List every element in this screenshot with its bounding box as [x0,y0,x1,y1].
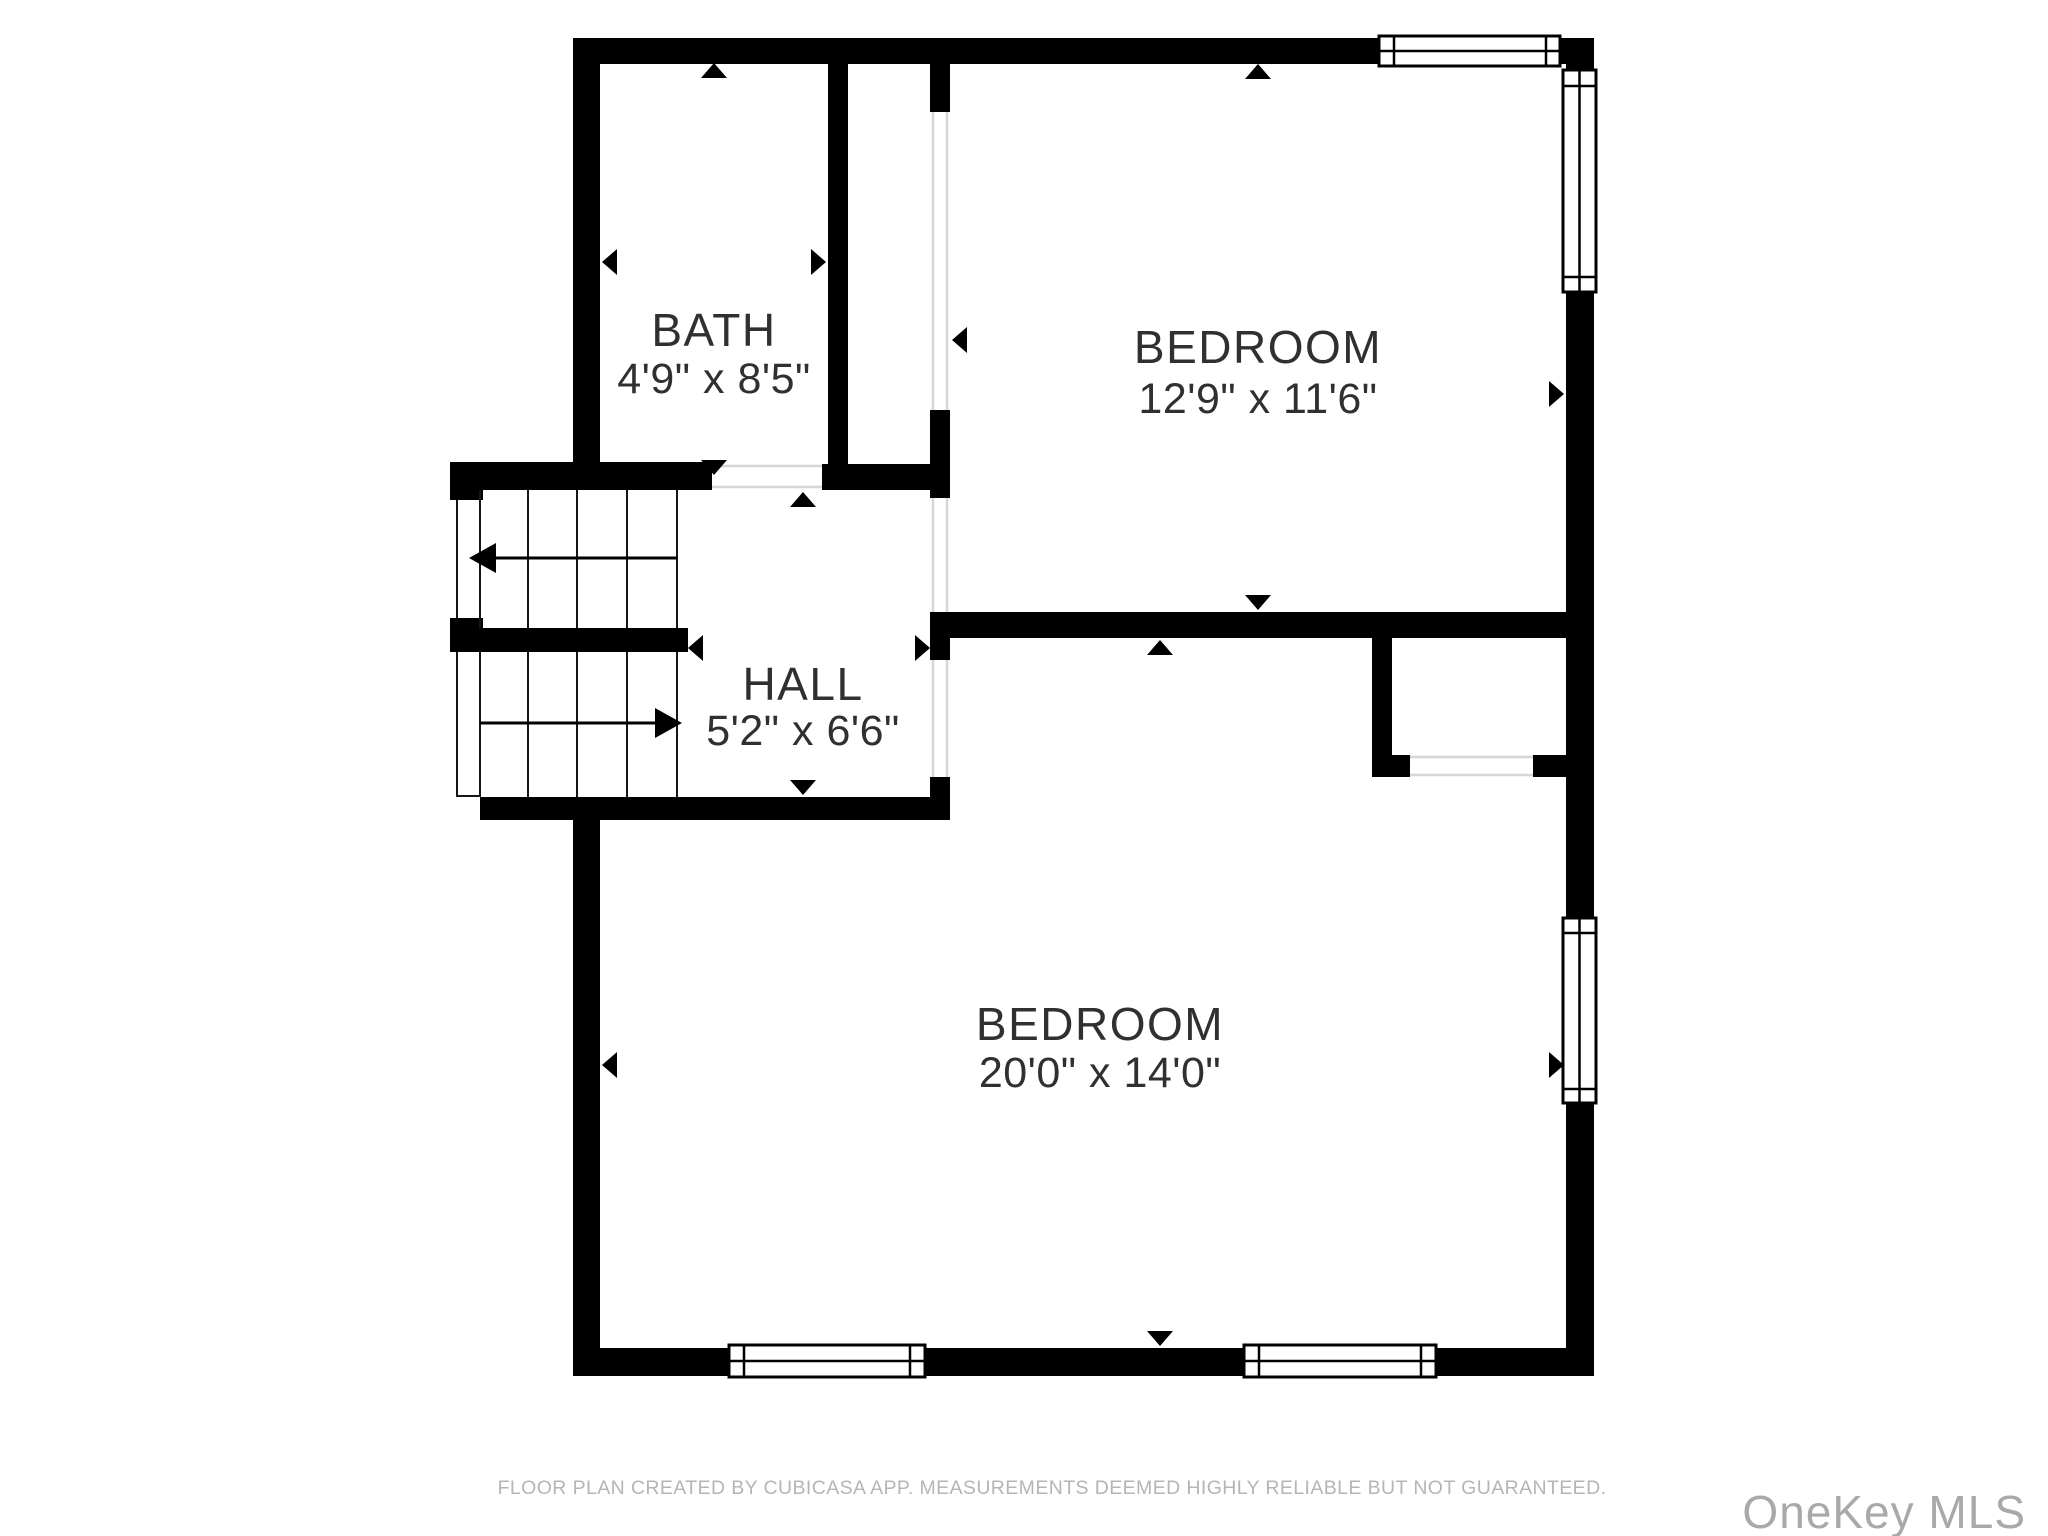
room-bath-dimensions: 4'9" x 8'5" [617,355,811,403]
wall-stair-top-cap [450,462,483,500]
hall-marker-left [688,635,703,661]
hall-marker-down [790,780,816,795]
window-bottom-bedroom-right [1563,918,1596,1103]
bedroom-bottom-marker-up [1147,640,1173,655]
wall-bottom [573,1348,1594,1376]
window-bottom-bedroom-left [729,1345,925,1377]
wall-bedroom-divider [950,612,1594,638]
wall-hall-right-b [930,410,950,498]
bedroom-top-marker-right [1549,381,1564,407]
floor-plan-canvas: BATH 4'9" x 8'5" BEDROOM 12'9" x 11'6" H… [0,0,2048,1536]
disclaimer-text: FLOOR PLAN CREATED BY CUBICASA APP. MEAS… [498,1477,1607,1499]
bath-marker-right [811,249,826,275]
room-bath-name: BATH [651,304,776,356]
wall-left-upper [573,38,600,490]
room-bedroom-bottom-name: BEDROOM [976,998,1224,1050]
window-top-bedroom-right [1563,70,1596,292]
room-hall: HALL 5'2" x 6'6" [706,658,900,755]
hall-to-bottom-bedroom-door [933,660,947,777]
bedroom-bottom-marker-left [602,1052,617,1078]
bath-door-opening [712,466,822,487]
room-bath: BATH 4'9" x 8'5" [617,304,811,403]
window-top-bedroom-top [1379,36,1560,66]
wall-hall-right-c [930,612,950,660]
bedroom-alcove-opening [933,112,947,410]
wall-stair-top [450,462,712,490]
wall-closet-stub-right [1533,755,1566,777]
room-bedroom-bottom-dimensions: 20'0" x 14'0" [979,1049,1221,1097]
wall-stair-mid [450,628,688,652]
hall-marker-right [915,635,930,661]
wall-corridor-bottom [822,464,930,490]
room-bedroom-top-name: BEDROOM [1134,321,1382,373]
room-bedroom-top-dimensions: 12'9" x 11'6" [1138,375,1377,423]
wall-stair-mid-cap [450,618,483,652]
bedroom-top-marker-down [1245,595,1271,610]
wall-bath-right [828,62,848,490]
bath-marker-left [602,249,617,275]
closet-door-opening [1410,757,1533,775]
wall-hall-right-a [930,62,950,112]
bedroom-top-marker-left [952,327,967,353]
wall-closet-stub-left [1372,755,1410,777]
bedroom-bottom-marker-down [1147,1331,1173,1346]
room-bedroom-top: BEDROOM 12'9" x 11'6" [1134,321,1382,423]
hall-marker-up [790,492,816,507]
room-bedroom-bottom: BEDROOM 20'0" x 14'0" [976,998,1224,1097]
bedroom-top-marker-up [1245,64,1271,79]
room-hall-dimensions: 5'2" x 6'6" [706,707,900,755]
walls [450,38,1594,1376]
wall-left-lower [573,797,600,1348]
stair-up-arrow-head [469,543,496,573]
hall-to-top-bedroom-door [933,498,947,612]
wall-hall-bottom [480,797,950,820]
room-hall-name: HALL [742,658,863,710]
watermark: OneKey MLS [1742,1486,2026,1536]
bath-marker-up [701,63,727,78]
room-labels: BATH 4'9" x 8'5" BEDROOM 12'9" x 11'6" H… [617,304,1382,1097]
window-bottom-bedroom-center [1244,1345,1436,1377]
